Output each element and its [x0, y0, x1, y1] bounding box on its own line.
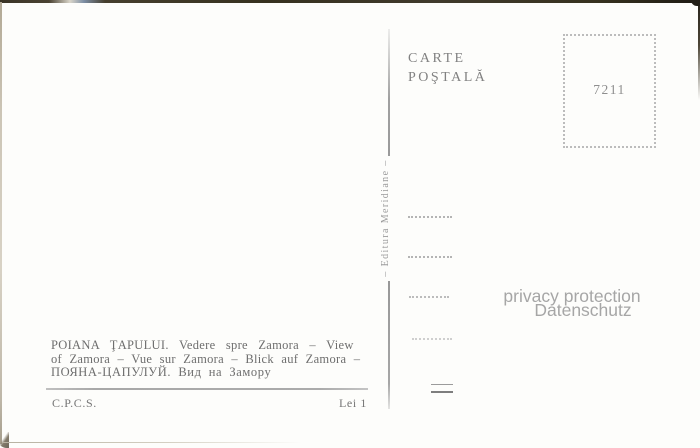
postcard-title: CARTE POŞTALĂ [408, 49, 487, 87]
postcard-back-scan: { "header": { "title_line1": "CARTE", "t… [0, 0, 700, 446]
address-dotted-line [412, 338, 452, 340]
divider-line-bottom [388, 281, 390, 409]
scan-corner-top-right [691, 0, 700, 6]
scan-edge-left [0, 2, 2, 444]
postcard-title-line1: CARTE [408, 49, 487, 68]
postcard-title-line2: POŞTALĂ [408, 68, 487, 87]
caption-line3: ПОЯНА-ЦАПУЛУЙ. Вид на Замору [51, 366, 373, 380]
scan-edge-top [0, 0, 700, 3]
equals-mark [431, 384, 453, 393]
stamp-box-number: 7211 [565, 82, 654, 98]
scan-edge-bottom [2, 442, 302, 444]
publisher-label: – Editura Meridiane – [380, 147, 394, 289]
caption-line1: POIANA ŢAPULUI. Vedere spre Zamora – Vie… [51, 339, 373, 353]
footer-rule [46, 388, 368, 390]
address-dotted-line [408, 216, 452, 218]
address-dotted-line [409, 296, 449, 298]
caption-line2: of Zamora – Vue sur Zamora – Blick auf Z… [51, 353, 373, 367]
footer-price: Lei 1 [339, 396, 367, 411]
caption-block: POIANA ŢAPULUI. Vedere spre Zamora – Vie… [51, 339, 373, 380]
address-dotted-line [408, 256, 452, 258]
footer-row: C.P.C.S. Lei 1 [52, 396, 367, 411]
footer-agency: C.P.C.S. [52, 396, 97, 411]
stamp-box: 7211 [563, 34, 656, 148]
divider-line-top [388, 29, 390, 156]
privacy-watermark: privacy protection Datenschutz [488, 289, 656, 317]
